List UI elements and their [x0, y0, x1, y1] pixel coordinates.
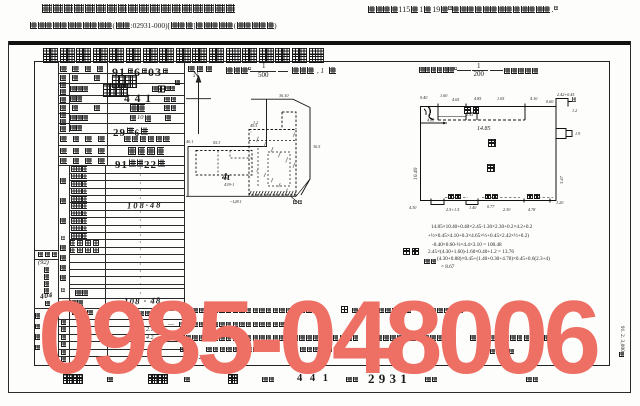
- svg-text:0.40: 0.40: [420, 95, 428, 100]
- svg-text:14.85: 14.85: [477, 125, 491, 132]
- svg-text:10.40: 10.40: [412, 167, 419, 180]
- svg-text:2.30: 2.30: [503, 207, 511, 212]
- svg-text:1.9: 1.9: [575, 131, 581, 136]
- svg-text:0.60: 0.60: [546, 99, 554, 104]
- svg-text:1.05: 1.05: [497, 96, 504, 101]
- svg-text:1.60: 1.60: [440, 93, 448, 98]
- svg-text:36.10: 36.10: [279, 93, 289, 98]
- svg-text:1.20: 1.20: [556, 200, 564, 205]
- svg-text:4.10: 4.10: [530, 96, 538, 101]
- svg-text:05.3: 05.3: [213, 140, 220, 145]
- svg-text:36.5: 36.5: [313, 144, 320, 149]
- svg-text:40.1: 40.1: [186, 139, 193, 144]
- svg-text:439-1: 439-1: [224, 182, 235, 187]
- svg-text:4.85: 4.85: [474, 96, 481, 101]
- svg-text:4.65: 4.65: [452, 97, 459, 102]
- svg-text:4.30: 4.30: [409, 205, 417, 210]
- svg-text:1.2: 1.2: [253, 120, 258, 125]
- svg-text:1.40: 1.40: [469, 205, 477, 210]
- svg-text:3.47: 3.47: [559, 175, 564, 184]
- svg-text:~128.1: ~128.1: [230, 199, 242, 204]
